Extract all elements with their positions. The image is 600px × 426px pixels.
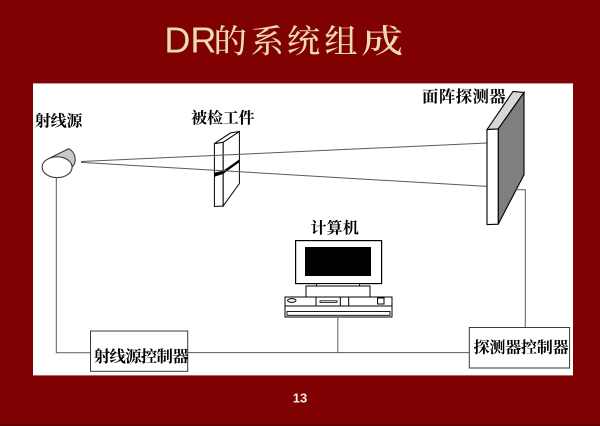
svg-text:DR: DR [164, 20, 216, 61]
svg-text:13: 13 [293, 391, 307, 406]
